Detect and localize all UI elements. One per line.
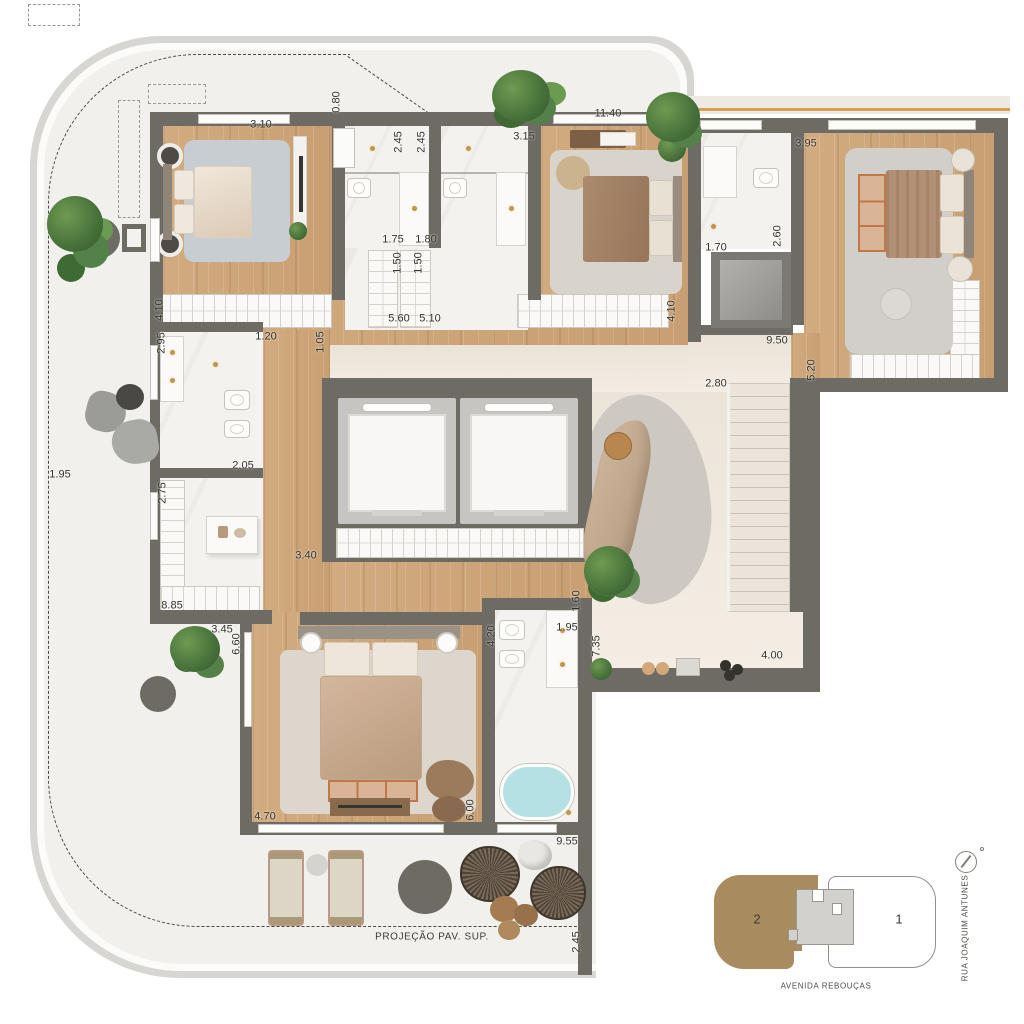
faucet bbox=[560, 628, 565, 633]
faucet bbox=[170, 350, 175, 355]
headboard-panel bbox=[298, 626, 460, 639]
service-elevator-cab bbox=[720, 260, 782, 320]
side-table bbox=[604, 432, 632, 460]
rattan-pouf bbox=[460, 846, 520, 902]
tv bbox=[299, 156, 303, 212]
wall bbox=[578, 598, 592, 975]
terrace-table bbox=[306, 854, 328, 876]
minimap-unit-1-label: 1 bbox=[895, 912, 902, 927]
minimap-core-tooth bbox=[788, 929, 798, 941]
tree bbox=[47, 196, 103, 252]
vanity bbox=[703, 146, 737, 198]
wall bbox=[482, 598, 495, 824]
sun-lounger bbox=[328, 850, 364, 926]
wall bbox=[150, 468, 263, 478]
planter-outline bbox=[28, 4, 80, 26]
bed-pillows bbox=[649, 220, 673, 256]
minimap-unit-2-label: 2 bbox=[753, 912, 760, 927]
elevator-cab bbox=[348, 414, 446, 512]
toilet bbox=[347, 178, 371, 198]
decor bbox=[600, 132, 636, 146]
pouf bbox=[518, 840, 552, 870]
rattan-pouf bbox=[530, 866, 586, 920]
pouf bbox=[116, 384, 144, 410]
corridor-floor bbox=[263, 330, 330, 622]
plant bbox=[590, 658, 612, 680]
hall-wardrobe bbox=[336, 528, 584, 558]
wall bbox=[803, 378, 820, 692]
bed-pillows bbox=[174, 204, 194, 234]
faucet bbox=[170, 378, 175, 383]
shower-head bbox=[370, 146, 375, 151]
bed-pillows bbox=[940, 174, 964, 212]
elevator-door bbox=[484, 403, 554, 412]
elevator-door bbox=[362, 403, 432, 412]
window bbox=[150, 345, 158, 400]
toilet bbox=[499, 620, 525, 640]
pouf bbox=[498, 920, 520, 940]
floor-plan-canvas: PROJEÇÃO PAV. SUP. bbox=[0, 0, 1024, 1024]
shower-head bbox=[466, 146, 471, 151]
plant bbox=[289, 222, 307, 240]
compass-needle bbox=[961, 855, 972, 868]
sun-lounger bbox=[268, 850, 304, 926]
bed-headboard bbox=[673, 176, 682, 262]
window bbox=[828, 120, 976, 130]
terrace-table bbox=[398, 860, 452, 914]
faucet bbox=[711, 224, 716, 229]
nightstand bbox=[436, 632, 458, 654]
wall bbox=[528, 126, 541, 300]
side-table bbox=[951, 148, 975, 172]
bedroom-3-entry-floor bbox=[791, 333, 820, 380]
pergola-line bbox=[688, 108, 1010, 111]
bed-headboard bbox=[163, 164, 172, 240]
closet-decor bbox=[218, 526, 228, 538]
linen-closet bbox=[400, 250, 431, 328]
linen-closet bbox=[368, 250, 398, 328]
bidet bbox=[499, 650, 525, 668]
elevator-1 bbox=[338, 398, 456, 524]
faucet bbox=[560, 662, 565, 667]
wall bbox=[790, 378, 803, 612]
bathtub bbox=[500, 764, 574, 820]
elevator-2 bbox=[460, 398, 578, 524]
minimap-core-notch bbox=[832, 903, 842, 915]
bidet bbox=[224, 420, 250, 438]
wall bbox=[300, 612, 482, 625]
tree bbox=[646, 92, 700, 142]
tree bbox=[492, 70, 550, 122]
vanity bbox=[546, 610, 578, 688]
bed-duvet bbox=[886, 170, 942, 258]
deck-strip bbox=[688, 96, 1010, 114]
window bbox=[497, 824, 557, 833]
pouf bbox=[656, 662, 669, 675]
bed-headboard bbox=[964, 170, 974, 258]
planter-stub bbox=[122, 224, 146, 252]
pouf bbox=[642, 662, 655, 675]
faucet bbox=[412, 206, 417, 211]
ottoman bbox=[432, 796, 466, 822]
pouf bbox=[514, 904, 538, 926]
open-shelf bbox=[858, 174, 886, 252]
compass-north-dot bbox=[980, 847, 984, 851]
window bbox=[150, 492, 158, 540]
terrace-glass-door bbox=[244, 632, 252, 727]
wall bbox=[150, 610, 272, 624]
bed-pillows bbox=[649, 180, 673, 216]
bed-duvet bbox=[320, 676, 422, 780]
toilet bbox=[224, 390, 250, 410]
shaft-niche bbox=[333, 128, 355, 168]
side-table bbox=[947, 256, 973, 282]
wall bbox=[820, 378, 1008, 392]
bedroom-3-closet bbox=[950, 280, 980, 356]
bed-duvet bbox=[194, 166, 252, 238]
terrace-table bbox=[140, 676, 176, 712]
terrace-door bbox=[150, 218, 160, 262]
bed-pillows bbox=[174, 170, 194, 200]
staircase bbox=[727, 383, 790, 612]
plant bbox=[584, 546, 634, 596]
vanity bbox=[160, 336, 184, 402]
projection-note: PROJEÇÃO PAV. SUP. bbox=[375, 932, 489, 943]
tree bbox=[170, 626, 220, 672]
window bbox=[198, 114, 290, 124]
bed-pillows bbox=[940, 216, 964, 254]
faucet bbox=[566, 810, 571, 815]
closet-room-shelf bbox=[160, 586, 260, 612]
wall bbox=[495, 598, 578, 610]
closet-decor bbox=[234, 528, 246, 538]
minimap-core bbox=[796, 889, 854, 945]
wall bbox=[688, 126, 701, 342]
compass-icon bbox=[955, 851, 977, 873]
service-elevator bbox=[711, 252, 791, 328]
faucet bbox=[213, 362, 218, 367]
pouf bbox=[724, 670, 735, 681]
wall bbox=[994, 118, 1008, 392]
lounge-chair bbox=[426, 760, 474, 800]
projection-dashed-bottom bbox=[348, 926, 592, 927]
toilet bbox=[753, 168, 779, 188]
location-minimap: 2 1 AVENIDA REBOUÇAS RUA JOAQUIM ANTUNES bbox=[700, 843, 992, 1015]
sliding-door bbox=[258, 824, 444, 833]
elevator-sill bbox=[372, 510, 422, 516]
bed-pillows bbox=[324, 642, 370, 676]
closet-island bbox=[206, 516, 258, 554]
minimap-core-notch bbox=[812, 889, 824, 902]
elevator-sill bbox=[494, 510, 544, 516]
toilet bbox=[443, 178, 467, 198]
coffee-table bbox=[880, 288, 912, 320]
elevator-cab bbox=[470, 414, 568, 512]
wall bbox=[429, 126, 441, 248]
wall bbox=[592, 668, 815, 692]
street-label-rua: RUA JOAQUIM ANTUNES bbox=[961, 875, 970, 982]
nightstand bbox=[300, 632, 322, 654]
bed-pillows bbox=[372, 642, 418, 676]
floor-mat bbox=[676, 658, 700, 676]
window bbox=[700, 120, 762, 130]
tv bbox=[338, 805, 402, 808]
faucet bbox=[509, 206, 514, 211]
bedroom-3-closet bbox=[850, 354, 980, 380]
wall bbox=[791, 133, 804, 325]
wall bbox=[150, 322, 263, 332]
bed-duvet bbox=[583, 176, 649, 262]
street-label-avenida: AVENIDA REBOUÇAS bbox=[781, 982, 872, 991]
